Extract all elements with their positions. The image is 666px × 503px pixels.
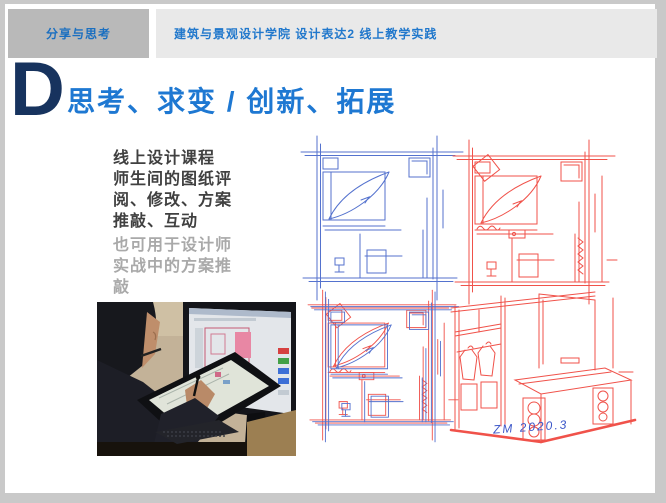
overlay-bedroom-plan-sketch [310,292,455,440]
header-bar: 建筑与景观设计学院 设计表达2 线上教学实践 [156,9,657,58]
header-title: 建筑与景观设计学院 设计表达2 线上教学实践 [174,25,437,42]
designer-pen-display-photo [97,302,296,456]
body-text-primary: 线上设计课程 师生间的图纸评 阅、修改、方案 推敲、互动 [113,148,232,232]
slide: 分享与思考 建筑与景观设计学院 设计表达2 线上教学实践 D 思考、求变 / 创… [5,4,655,493]
blue-bedroom-plan-sketch [305,138,460,300]
body-text-secondary: 也可用于设计师 实战中的方案推 敲 [113,235,232,298]
red-bedroom-plan-sketch [457,142,612,304]
page-title: 思考、求变 / 创新、拓展 [67,80,396,120]
section-letter: D [10,52,65,128]
tab-label: 分享与思考 [46,25,111,42]
photo-illustration [97,302,296,456]
